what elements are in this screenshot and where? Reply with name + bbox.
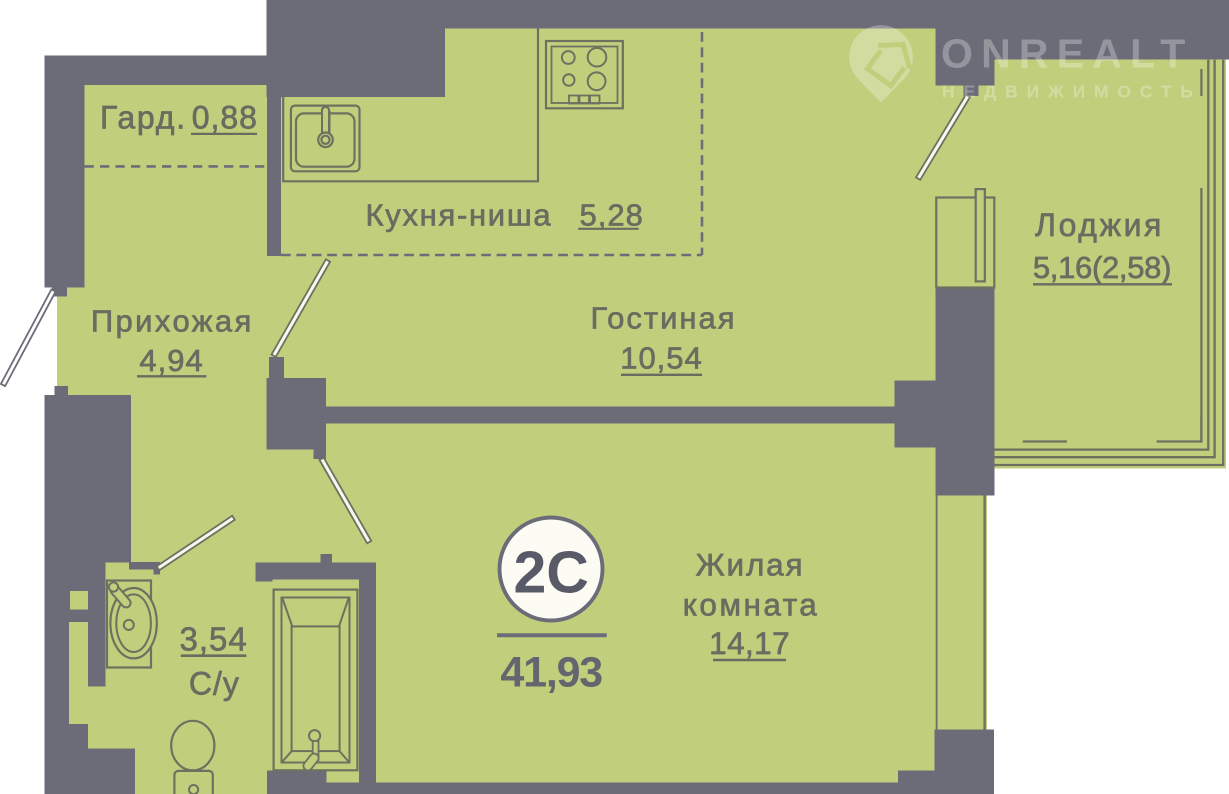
- svg-text:Гостиная: Гостиная: [590, 301, 736, 336]
- svg-text:Кухня-ниша: Кухня-ниша: [366, 198, 553, 233]
- svg-text:ONREALT: ONREALT: [941, 31, 1194, 77]
- svg-text:НЕДВИЖИМОСТЬ: НЕДВИЖИМОСТЬ: [942, 82, 1202, 102]
- svg-text:10,54: 10,54: [620, 341, 703, 376]
- svg-text:5,16(2,58): 5,16(2,58): [1033, 250, 1171, 285]
- svg-text:0,88: 0,88: [192, 100, 258, 136]
- svg-text:3,54: 3,54: [179, 621, 247, 658]
- svg-text:Жилая: Жилая: [696, 547, 805, 583]
- svg-text:41,93: 41,93: [500, 649, 602, 697]
- svg-text:Прихожая: Прихожая: [91, 304, 254, 339]
- svg-text:С/у: С/у: [189, 666, 240, 702]
- svg-text:4,94: 4,94: [139, 343, 203, 378]
- svg-text:Лоджия: Лоджия: [1035, 207, 1164, 243]
- svg-text:14,17: 14,17: [709, 625, 790, 661]
- svg-text:5,28: 5,28: [580, 198, 644, 233]
- svg-text:2С: 2С: [513, 540, 588, 606]
- svg-text:комната: комната: [683, 586, 820, 622]
- svg-text:Гард.: Гард.: [100, 100, 187, 136]
